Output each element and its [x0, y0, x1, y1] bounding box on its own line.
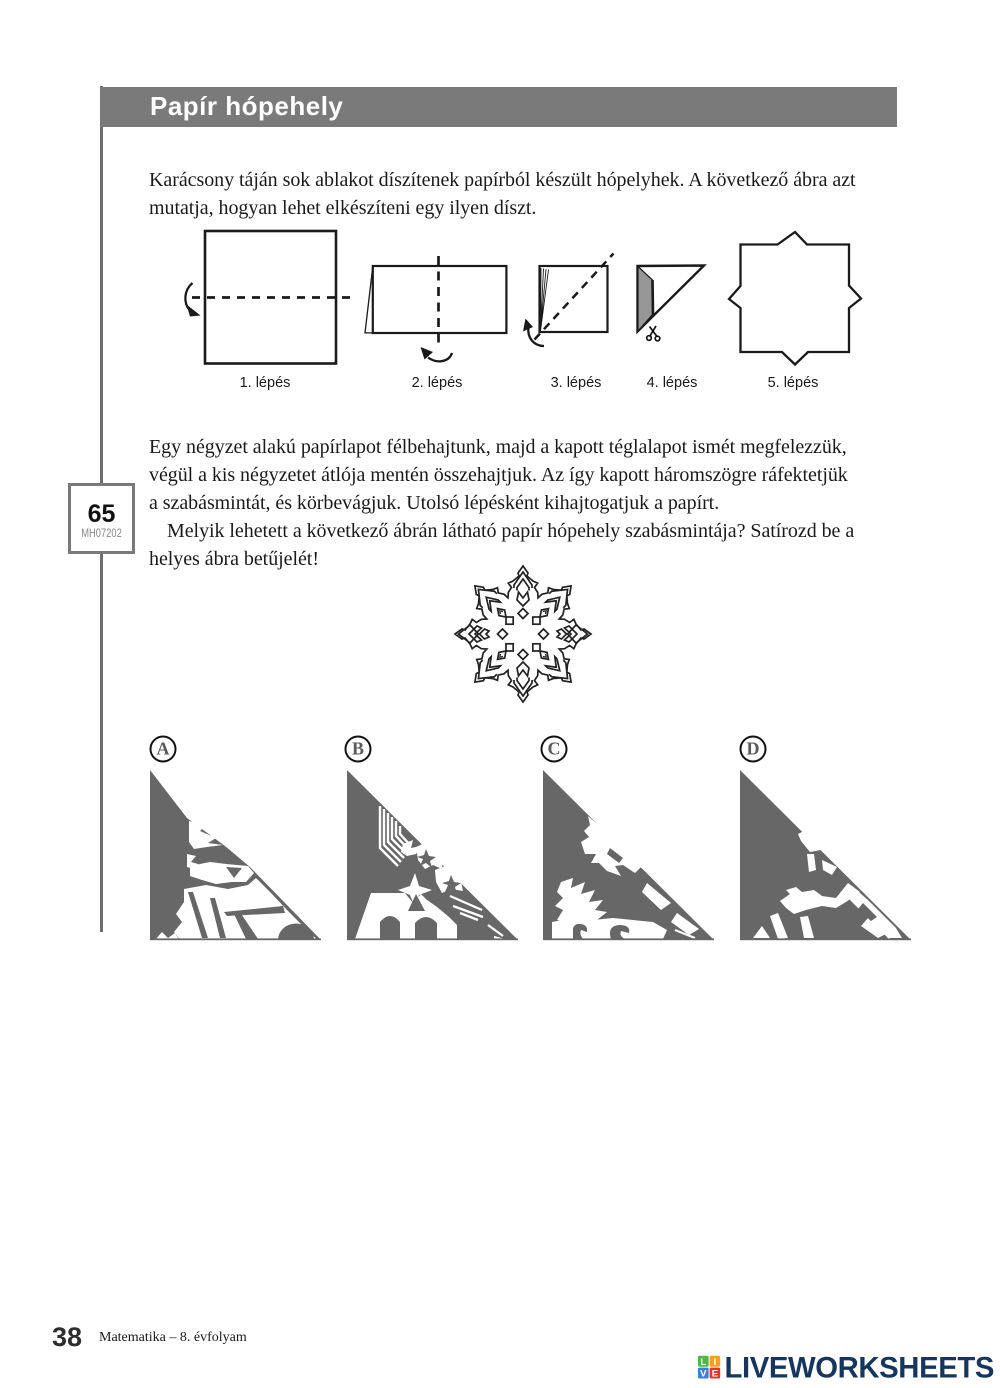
svg-text:I: I — [714, 1357, 717, 1368]
svg-text:LIVEWORKSHEETS: LIVEWORKSHEETS — [725, 1355, 995, 1380]
svg-text:D: D — [747, 739, 760, 759]
svg-text:A: A — [157, 739, 170, 759]
svg-text:C: C — [548, 739, 561, 759]
svg-text:E: E — [712, 1369, 718, 1380]
svg-text:L: L — [700, 1357, 706, 1368]
svg-text:V: V — [700, 1369, 707, 1380]
svg-text:B: B — [352, 739, 364, 759]
